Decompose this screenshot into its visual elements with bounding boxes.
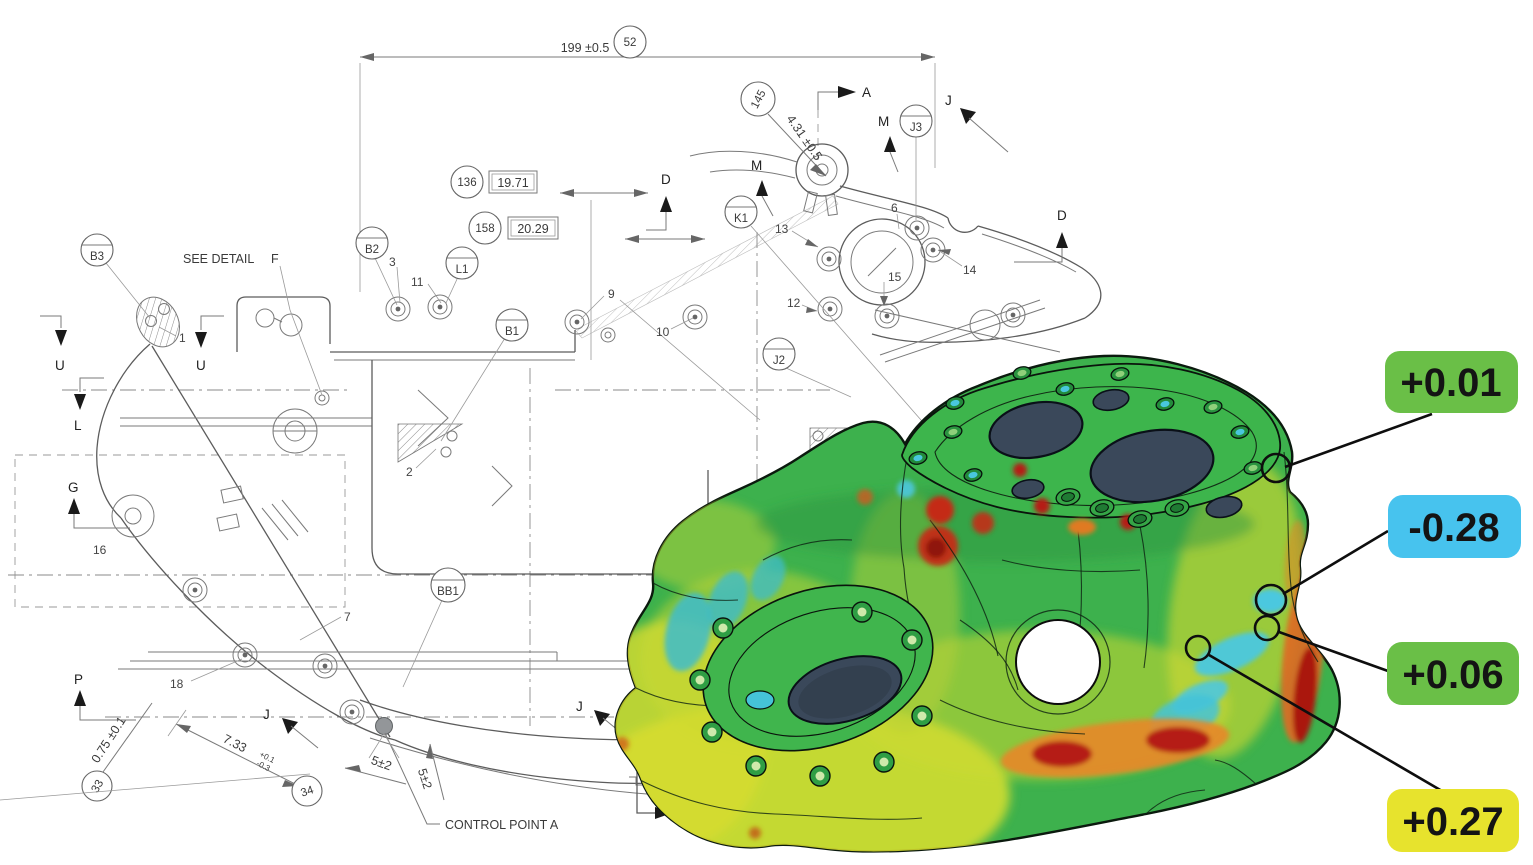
view-arrow-A: A — [818, 85, 871, 110]
svg-text:B3: B3 — [90, 251, 104, 263]
item-1: 1 — [179, 331, 186, 345]
svg-text:0.75 ±0.1: 0.75 ±0.1 — [89, 714, 129, 765]
deviation-label-3: +0.06 — [1387, 642, 1519, 705]
item-16: 16 — [93, 543, 107, 557]
svg-text:J: J — [945, 93, 952, 108]
svg-text:P: P — [74, 672, 83, 687]
svg-text:+0.27: +0.27 — [1402, 800, 1503, 844]
svg-text:J3: J3 — [910, 122, 922, 134]
balloon-B1: B1 — [496, 309, 528, 341]
dim-733: 7.33 +0.1 -0.3 34 — [0, 710, 322, 806]
item-14: 14 — [963, 263, 977, 277]
svg-text:M: M — [751, 158, 762, 173]
balloon-145: 145 — [741, 82, 775, 116]
balloon-B3: B3 — [81, 234, 113, 266]
svg-text:U: U — [196, 358, 206, 373]
svg-text:B2: B2 — [365, 244, 379, 256]
svg-text:B1: B1 — [505, 326, 519, 338]
svg-text:G: G — [68, 480, 79, 495]
detail-ref: F — [271, 252, 279, 266]
svg-text:A: A — [862, 85, 871, 100]
view-arrow-D1: D — [646, 172, 672, 230]
svg-text:52: 52 — [624, 37, 637, 49]
svg-text:5±2: 5±2 — [369, 753, 393, 773]
svg-text:7.33: 7.33 — [221, 732, 249, 756]
model-through-hole — [1016, 620, 1100, 704]
view-arrow-D2: D — [1014, 208, 1068, 262]
balloon-52: 52 — [614, 26, 646, 58]
view-arrow-M1: M — [878, 114, 898, 172]
view-arrow-J-top: J — [945, 93, 1008, 152]
item-2: 2 — [406, 465, 413, 479]
item-6: 6 — [891, 201, 898, 215]
deviation-label-2: -0.28 — [1388, 495, 1521, 558]
balloon-B2: B2 — [356, 227, 388, 259]
svg-text:5±2: 5±2 — [415, 767, 435, 791]
svg-text:K1: K1 — [734, 213, 748, 225]
view-arrow-J-bottom-1: J — [263, 707, 318, 748]
svg-text:20.29: 20.29 — [517, 222, 548, 236]
balloon-BB1: BB1 — [431, 568, 465, 602]
view-arrow-U1: U — [40, 316, 67, 373]
svg-text:136: 136 — [457, 177, 476, 189]
view-arrow-P: P — [74, 672, 136, 720]
svg-text:D: D — [1057, 208, 1067, 223]
see-detail-note: SEE DETAIL — [183, 252, 254, 266]
cad-deviation-overlay: 199 ±0.5 52 145 4.31 ±0.5 136 19.71 158 … — [0, 0, 1533, 865]
item-13: 13 — [775, 222, 789, 236]
svg-text:U: U — [55, 358, 65, 373]
item-11: 11 — [411, 275, 424, 289]
svg-text:J: J — [263, 707, 270, 722]
item-3: 3 — [389, 255, 396, 269]
heatmap-model — [577, 356, 1340, 865]
svg-text:+0.01: +0.01 — [1400, 361, 1501, 405]
item-12: 12 — [787, 296, 801, 310]
svg-text:J: J — [576, 699, 583, 714]
svg-text:J2: J2 — [773, 355, 785, 367]
balloon-L1: L1 — [446, 247, 478, 279]
dim-box-2029: 158 20.29 — [469, 212, 705, 244]
deviation-label-1: +0.01 — [1385, 351, 1518, 413]
dim-075: 33 0.75 ±0.1 — [82, 703, 152, 801]
svg-text:+0.06: +0.06 — [1402, 653, 1503, 697]
deviation-label-4: +0.27 — [1387, 789, 1519, 852]
svg-text:M: M — [878, 114, 889, 129]
view-arrow-L: L — [74, 378, 104, 433]
control-point-marker — [376, 718, 393, 735]
balloon-K1: K1 — [725, 196, 757, 228]
svg-text:L: L — [74, 418, 82, 433]
svg-text:BB1: BB1 — [437, 586, 459, 598]
item-18: 18 — [170, 677, 184, 691]
view-arrow-U2: U — [195, 316, 224, 373]
svg-text:-0.28: -0.28 — [1408, 506, 1499, 550]
item-10: 10 — [656, 325, 670, 339]
balloon-J2: J2 — [763, 338, 795, 370]
item-7: 7 — [344, 610, 351, 624]
dim-box-1971: 136 19.71 — [451, 166, 648, 360]
svg-text:L1: L1 — [456, 264, 469, 276]
view-arrow-G: G — [68, 480, 130, 528]
control-point-label: CONTROL POINT A — [445, 818, 559, 832]
item-15: 15 — [888, 270, 902, 284]
svg-text:19.71: 19.71 — [497, 176, 528, 190]
dim-overall: 199 ±0.5 — [561, 41, 610, 55]
balloon-J3: J3 — [900, 105, 932, 137]
svg-text:D: D — [661, 172, 671, 187]
svg-text:158: 158 — [475, 223, 494, 235]
item-9: 9 — [608, 287, 615, 301]
